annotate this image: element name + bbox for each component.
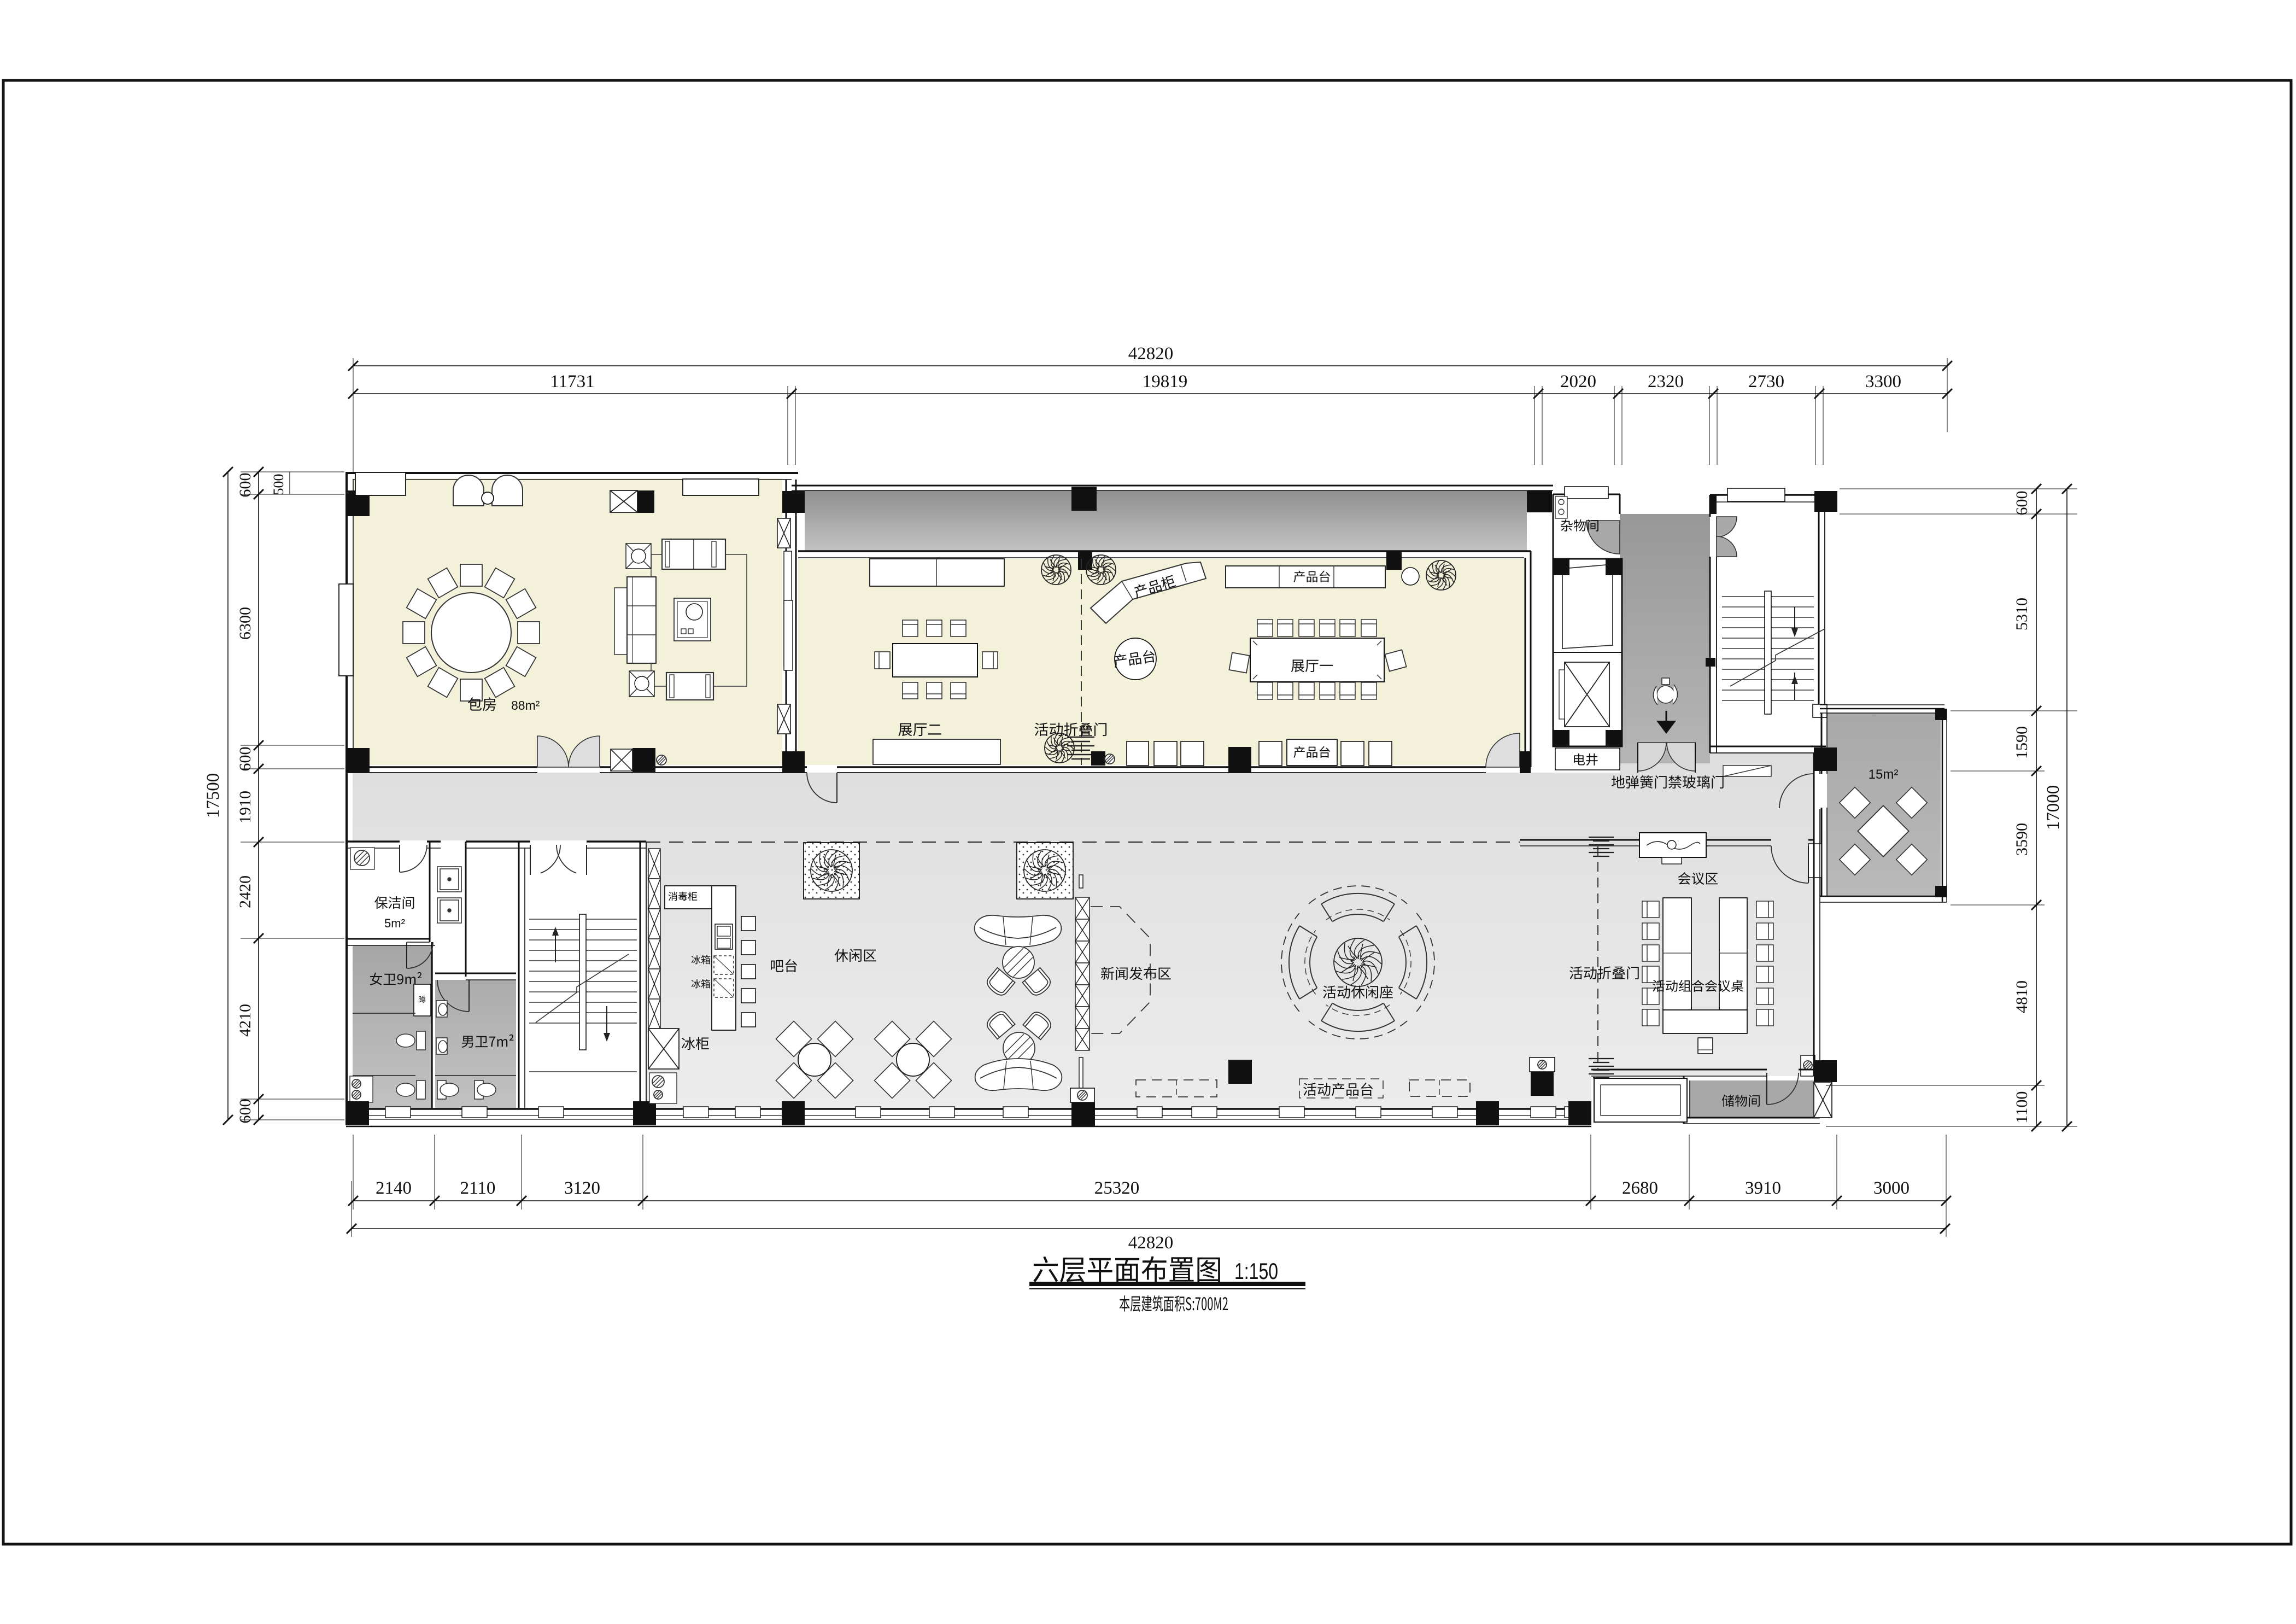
svg-text:2110: 2110	[460, 1178, 496, 1198]
svg-text:3910: 3910	[1745, 1178, 1781, 1198]
svg-text:1590: 1590	[2013, 726, 2031, 759]
svg-text:2730: 2730	[1748, 372, 1784, 392]
svg-text:1100: 1100	[2013, 1091, 2031, 1124]
svg-text:4210: 4210	[236, 1004, 254, 1037]
svg-text:25320: 25320	[1094, 1178, 1140, 1198]
svg-text:15m²: 15m²	[1869, 767, 1899, 782]
svg-text:6300: 6300	[236, 607, 254, 640]
svg-text:11731: 11731	[550, 372, 594, 392]
svg-text:600: 600	[2013, 491, 2031, 516]
svg-text:5310: 5310	[2013, 598, 2031, 630]
svg-text:4810: 4810	[2013, 980, 2031, 1013]
svg-text:3590: 3590	[2013, 823, 2031, 856]
svg-text:2420: 2420	[236, 875, 254, 908]
svg-text:3000: 3000	[1873, 1178, 1910, 1198]
svg-text:2680: 2680	[1622, 1178, 1658, 1198]
svg-text:1:150: 1:150	[1234, 1258, 1278, 1284]
svg-text:5m²: 5m²	[384, 916, 405, 930]
svg-text:1910: 1910	[236, 791, 254, 823]
svg-text:500: 500	[271, 474, 286, 495]
svg-text:3120: 3120	[564, 1178, 600, 1198]
svg-text:2140: 2140	[376, 1178, 412, 1198]
svg-text:42820: 42820	[1128, 1233, 1174, 1253]
svg-text:17500: 17500	[203, 773, 223, 819]
svg-text:19819: 19819	[1143, 372, 1188, 392]
svg-text:2320: 2320	[1648, 372, 1684, 392]
svg-text:2020: 2020	[1560, 372, 1596, 392]
svg-text:17000: 17000	[2043, 785, 2063, 831]
svg-text:3300: 3300	[1865, 372, 1901, 392]
svg-text:88m²: 88m²	[511, 698, 540, 712]
svg-text:42820: 42820	[1128, 344, 1174, 364]
svg-text:600: 600	[236, 747, 254, 772]
svg-text:600: 600	[236, 473, 254, 498]
